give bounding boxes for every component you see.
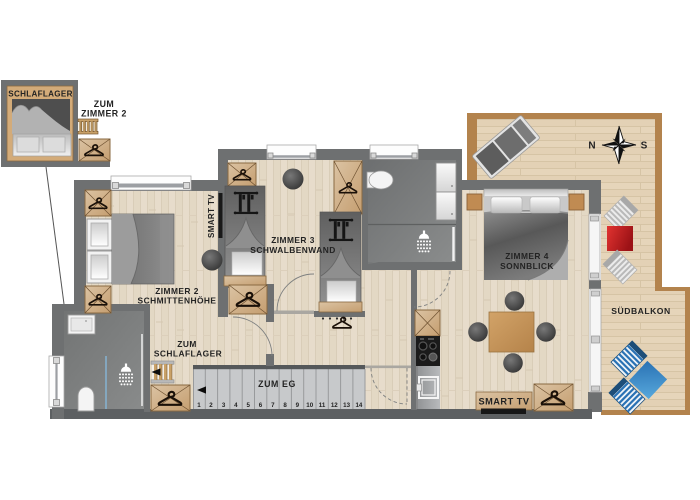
svg-text:SCHMITTENHÖHE: SCHMITTENHÖHE: [138, 296, 217, 306]
svg-text:11: 11: [319, 402, 326, 409]
svg-text:10: 10: [306, 402, 313, 409]
svg-text:N: N: [588, 141, 595, 152]
svg-text:ZUM: ZUM: [94, 99, 114, 109]
svg-text:3: 3: [222, 402, 226, 409]
svg-text:ZIMMER 3: ZIMMER 3: [271, 235, 315, 245]
svg-text:ZUM: ZUM: [177, 339, 197, 349]
svg-text:13: 13: [343, 402, 350, 409]
svg-text:SCHLAFLAGER: SCHLAFLAGER: [8, 90, 72, 99]
svg-text:SONNBLICK: SONNBLICK: [500, 261, 554, 271]
svg-text:SMART TV: SMART TV: [207, 194, 216, 238]
svg-text:9: 9: [296, 402, 300, 409]
svg-text:ZIMMER 4: ZIMMER 4: [505, 251, 549, 261]
svg-text:SÜDBALKON: SÜDBALKON: [611, 306, 670, 316]
svg-text:6: 6: [259, 402, 263, 409]
svg-text:SCHLAFLAGER: SCHLAFLAGER: [154, 349, 222, 359]
svg-text:4: 4: [234, 402, 238, 409]
svg-text:ZUM EG: ZUM EG: [258, 379, 296, 389]
svg-text:14: 14: [355, 402, 362, 409]
svg-text:2: 2: [209, 402, 213, 409]
svg-text:ZIMMER 2: ZIMMER 2: [155, 286, 199, 296]
svg-text:S: S: [641, 141, 648, 152]
svg-text:SCHWALBENWAND: SCHWALBENWAND: [250, 245, 335, 255]
svg-text:SMART TV: SMART TV: [479, 397, 530, 407]
svg-text:ZIMMER 2: ZIMMER 2: [81, 109, 127, 119]
svg-text:7: 7: [271, 402, 275, 409]
svg-text:8: 8: [283, 402, 287, 409]
svg-text:1: 1: [197, 402, 201, 409]
svg-text:5: 5: [246, 402, 250, 409]
svg-text:12: 12: [331, 402, 338, 409]
